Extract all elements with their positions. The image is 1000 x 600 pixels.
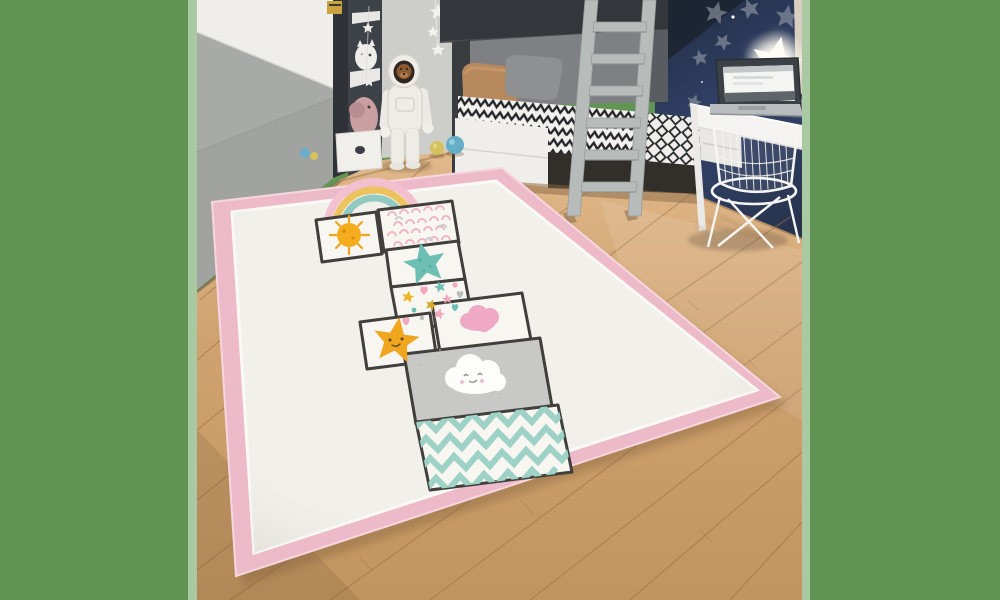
- toy-on-top: [327, 1, 342, 14]
- pillow-grey: [505, 55, 562, 101]
- room-photo: hel: [197, 0, 802, 600]
- screenshot-stage: hel: [0, 0, 1000, 600]
- drawer-box: [336, 130, 382, 172]
- green-matte-right: [802, 0, 1000, 600]
- laptop: [710, 58, 802, 116]
- green-matte-left: [0, 0, 197, 600]
- mattress-right-diamond: [640, 112, 700, 166]
